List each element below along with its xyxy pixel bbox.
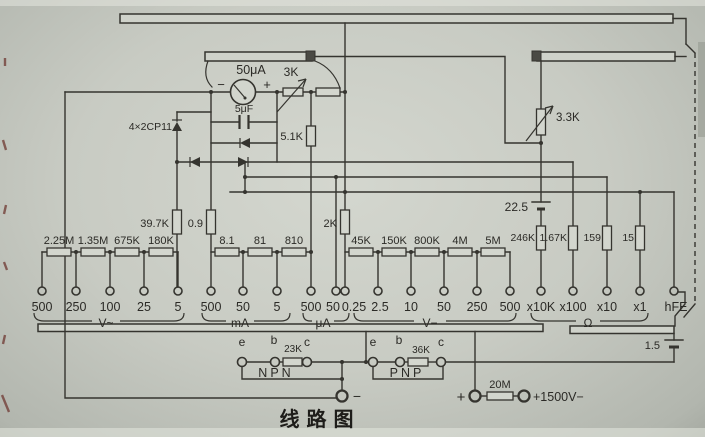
r-15-label: 15 — [622, 232, 634, 244]
schematic-photo: 50μA − + 3K 3.3K 5μF 4×2CP11 5.1K 39.7K … — [0, 0, 705, 437]
vdc-r3: 800K — [414, 235, 440, 247]
meter-movement — [231, 80, 256, 105]
hv-input-label: +1500V− — [533, 390, 584, 404]
shunt-5-1k-label: 5.1K — [280, 131, 303, 143]
ma-tap-50: 50 — [236, 300, 250, 314]
vac-tap-100: 100 — [100, 300, 121, 314]
ohm-tap-x100: x100 — [559, 300, 586, 314]
section-ua: μA — [316, 316, 331, 330]
pnp-b: b — [396, 333, 403, 347]
pnp-e: e — [370, 335, 377, 349]
capacitor-5uf — [240, 115, 249, 129]
npn-c: c — [304, 335, 310, 349]
r-39-7k-label: 39.7K — [140, 218, 169, 230]
vdc-r1: 45K — [351, 235, 371, 247]
vac-tap-5: 5 — [175, 300, 182, 314]
plus-jack — [470, 391, 481, 402]
range-tap-terminals — [38, 287, 678, 295]
vac-tap-25: 25 — [137, 300, 151, 314]
vdc-r2: 150K — [381, 235, 407, 247]
section-ma: mA — [231, 316, 249, 330]
ma-tap-5: 5 — [274, 300, 281, 314]
vac-r3: 675K — [114, 235, 140, 247]
npn-b: b — [271, 333, 278, 347]
ma-tap-500: 500 — [201, 300, 222, 314]
circuit-schematic: 50μA − + 3K 3.3K 5μF 4×2CP11 5.1K 39.7K … — [0, 0, 705, 437]
section-vac: V~ — [98, 316, 113, 330]
vdc-tap-025: 0.25 — [342, 300, 366, 314]
diodes-label: 4×2CP11 — [129, 121, 172, 133]
npn-label: NPN — [258, 366, 293, 380]
pot-3-3k — [526, 106, 553, 141]
npn-r: 23K — [284, 344, 302, 355]
ma-r2: 81 — [254, 235, 266, 247]
ohm-tap-x10: x10 — [597, 300, 617, 314]
cap-5uf-label: 5μF — [235, 103, 253, 115]
section-ohm: Ω — [584, 316, 593, 330]
ma-r3: 810 — [285, 235, 303, 247]
wiring — [42, 19, 695, 399]
pot-3-3k-label: 3.3K — [556, 112, 580, 124]
pnp-r: 36K — [412, 345, 430, 356]
vdc-tap-500: 500 — [500, 300, 521, 314]
pnp-label: PNP — [390, 366, 425, 380]
section-vdc: V− — [422, 316, 437, 330]
vdc-tap-50: 50 — [437, 300, 451, 314]
hv-jack — [519, 391, 530, 402]
ma-r1: 8.1 — [219, 235, 234, 247]
vac-r2: 1.35M — [78, 235, 109, 247]
vdc-tap-250: 250 — [467, 300, 488, 314]
ohm-tap-x10k: x10K — [527, 300, 556, 314]
battery-1-5v — [665, 340, 683, 347]
pot-3k-label: 3K — [284, 65, 299, 79]
battery-22-5-label: 22.5 — [505, 200, 529, 214]
switch-contact-bars — [38, 14, 675, 334]
r-1-67k-label: 1.67K — [540, 232, 567, 244]
ohm-tap-x1: x1 — [633, 300, 646, 314]
r-20m-label: 20M — [489, 379, 510, 391]
pot-3k — [277, 79, 306, 112]
battery-22-5v — [532, 202, 550, 209]
meter-label: 50μA — [236, 63, 266, 77]
meter-minus: − — [217, 77, 225, 92]
common-minus-label: − — [353, 388, 361, 404]
r-0-9-label: 0.9 — [188, 218, 203, 230]
npn-e: e — [239, 335, 246, 349]
ua-tap-500: 500 — [301, 300, 322, 314]
vac-tap-250: 250 — [66, 300, 87, 314]
vdc-tap-10: 10 — [404, 300, 418, 314]
vdc-tap-25: 2.5 — [371, 300, 388, 314]
r-246k-label: 246K — [510, 232, 535, 244]
plus-jack-label: + — [457, 389, 466, 406]
hfe-tap-label: hFE — [665, 300, 688, 314]
common-minus-jack — [337, 391, 348, 402]
vdc-r4: 4M — [452, 235, 467, 247]
vac-tap-500: 500 — [32, 300, 53, 314]
r-159-label: 159 — [583, 232, 601, 244]
photo-artifacts — [0, 0, 705, 437]
meter-plus: + — [263, 77, 271, 92]
battery-1-5-label: 1.5 — [645, 340, 660, 352]
r-2k-label: 2K — [324, 218, 338, 230]
pnp-c: c — [438, 335, 444, 349]
caption: 线路图 — [280, 407, 361, 431]
vac-r4: 180K — [148, 235, 174, 247]
section-brackets — [34, 313, 648, 321]
ua-tap-50: 50 — [326, 300, 340, 314]
vdc-r5: 5M — [485, 235, 500, 247]
vac-r1: 2.25M — [44, 235, 75, 247]
